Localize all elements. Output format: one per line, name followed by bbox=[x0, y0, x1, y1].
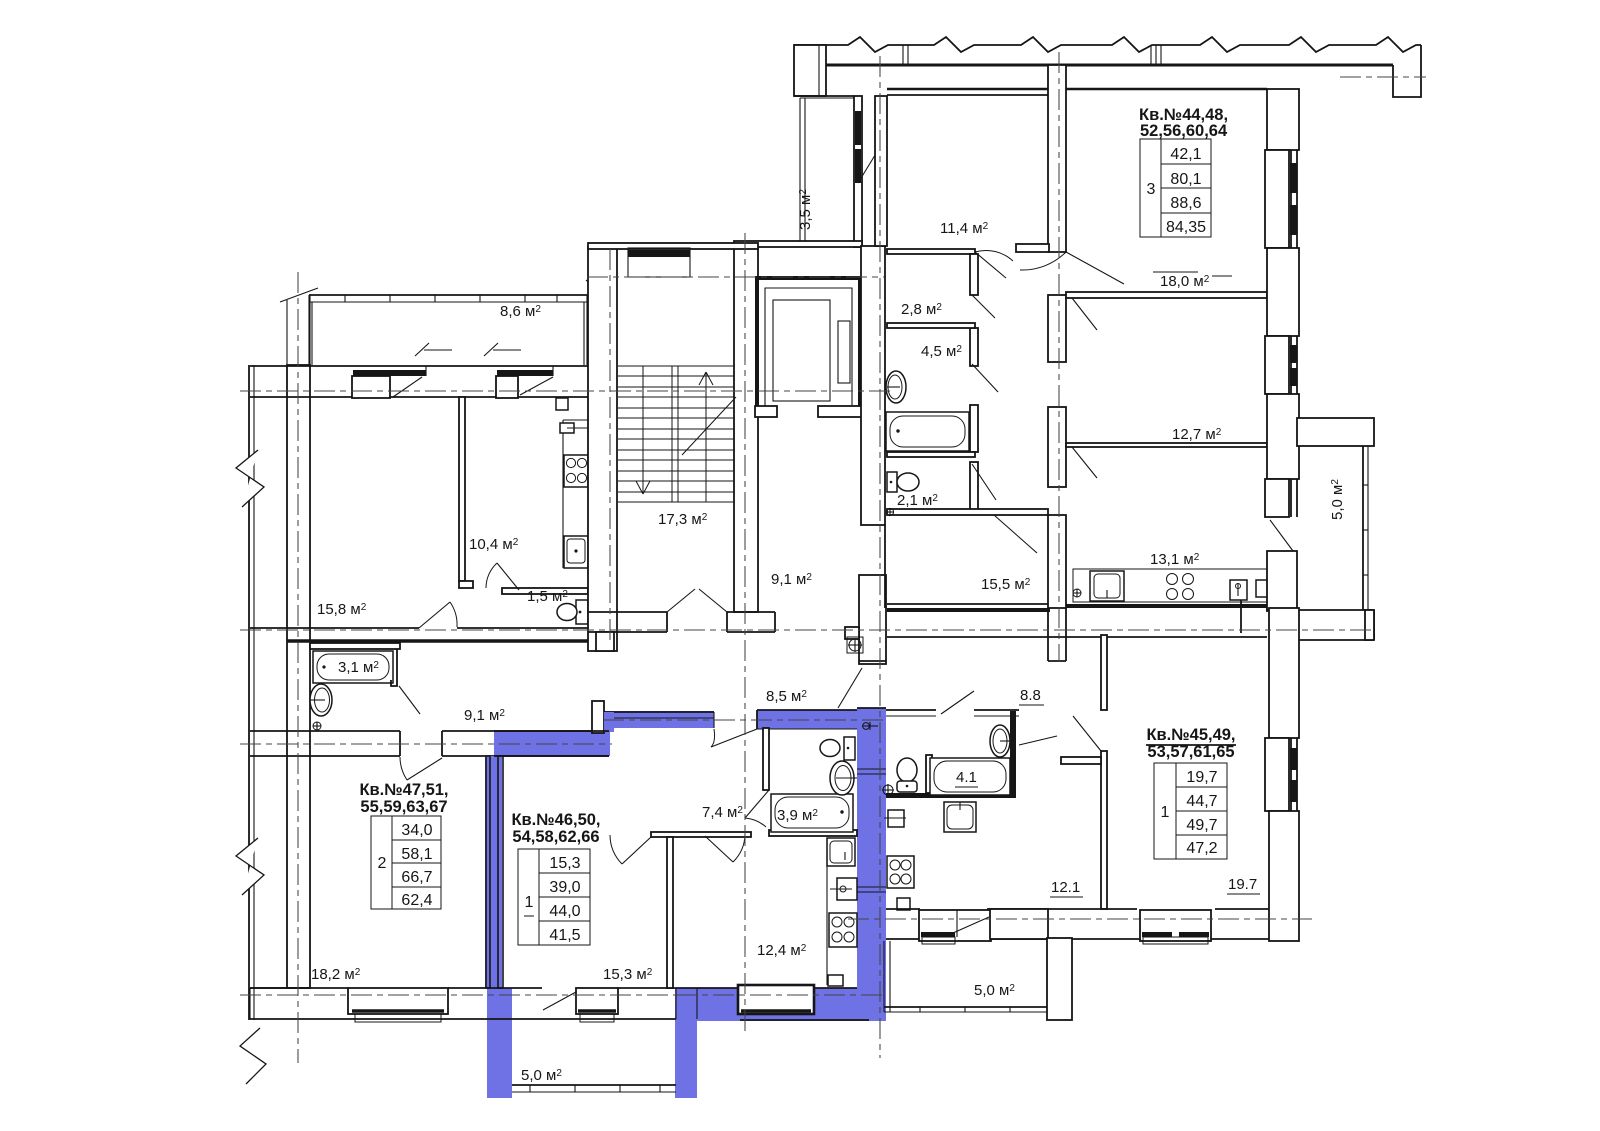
svg-text:12,4 м2: 12,4 м2 bbox=[757, 942, 807, 959]
svg-text:8.8: 8.8 bbox=[1020, 687, 1041, 704]
svg-text:3,5 м2: 3,5 м2 bbox=[797, 189, 814, 230]
svg-text:3,9 м2: 3,9 м2 bbox=[777, 807, 818, 824]
svg-text:1,5 м2: 1,5 м2 bbox=[527, 588, 568, 605]
svg-text:34,0: 34,0 bbox=[401, 822, 432, 839]
svg-text:5,0 м2: 5,0 м2 bbox=[974, 982, 1015, 999]
svg-text:12.1: 12.1 bbox=[1051, 879, 1080, 896]
svg-text:5,0 м2: 5,0 м2 bbox=[521, 1067, 562, 1084]
svg-text:10,4 м2: 10,4 м2 bbox=[469, 536, 519, 553]
svg-text:84,35: 84,35 bbox=[1166, 219, 1206, 236]
svg-text:19,7: 19,7 bbox=[1186, 769, 1217, 786]
svg-text:42,1: 42,1 bbox=[1170, 146, 1201, 163]
svg-text:2,1 м2: 2,1 м2 bbox=[897, 492, 938, 509]
svg-text:39,0: 39,0 bbox=[549, 879, 580, 896]
svg-text:47,2: 47,2 bbox=[1186, 840, 1217, 857]
svg-text:5,0 м2: 5,0 м2 bbox=[1329, 479, 1346, 520]
svg-text:19.7: 19.7 bbox=[1228, 876, 1257, 893]
svg-text:18,0 м2: 18,0 м2 bbox=[1160, 273, 1210, 290]
svg-text:54,58,62,66: 54,58,62,66 bbox=[512, 828, 599, 846]
svg-text:15,3: 15,3 bbox=[549, 855, 580, 872]
svg-text:49,7: 49,7 bbox=[1186, 817, 1217, 834]
svg-text:53,57,61,65: 53,57,61,65 bbox=[1147, 743, 1234, 761]
svg-text:44,0: 44,0 bbox=[549, 903, 580, 920]
svg-text:3,1 м2: 3,1 м2 bbox=[338, 659, 379, 676]
svg-text:44,7: 44,7 bbox=[1186, 793, 1217, 810]
svg-text:Кв.№47,51,: Кв.№47,51, bbox=[359, 781, 448, 799]
svg-text:41,5: 41,5 bbox=[549, 927, 580, 944]
svg-text:8,5 м2: 8,5 м2 bbox=[766, 688, 807, 705]
svg-text:1: 1 bbox=[1161, 804, 1170, 821]
svg-text:62,4: 62,4 bbox=[401, 892, 432, 909]
svg-text:9,1 м2: 9,1 м2 bbox=[771, 571, 812, 588]
svg-text:66,7: 66,7 bbox=[401, 869, 432, 886]
svg-text:3: 3 bbox=[1147, 181, 1156, 198]
svg-text:15,8 м2: 15,8 м2 bbox=[317, 601, 367, 618]
svg-text:88,6: 88,6 bbox=[1170, 195, 1201, 212]
svg-text:2,8 м2: 2,8 м2 bbox=[901, 301, 942, 318]
svg-text:80,1: 80,1 bbox=[1170, 171, 1201, 188]
svg-text:Кв.№45,49,: Кв.№45,49, bbox=[1146, 726, 1235, 744]
svg-text:52,56,60,64: 52,56,60,64 bbox=[1140, 122, 1228, 140]
svg-text:4.1: 4.1 bbox=[956, 769, 977, 786]
svg-text:55,59,63,67: 55,59,63,67 bbox=[360, 798, 447, 816]
svg-text:8,6 м2: 8,6 м2 bbox=[500, 303, 541, 320]
svg-text:58,1: 58,1 bbox=[401, 846, 432, 863]
svg-text:12,7 м2: 12,7 м2 bbox=[1172, 426, 1222, 443]
svg-text:4,5 м2: 4,5 м2 bbox=[921, 343, 962, 360]
svg-text:13,1 м2: 13,1 м2 bbox=[1150, 551, 1200, 568]
svg-text:7,4 м2: 7,4 м2 bbox=[702, 804, 743, 821]
svg-text:Кв.№46,50,: Кв.№46,50, bbox=[511, 811, 600, 829]
svg-text:15,5 м2: 15,5 м2 bbox=[981, 576, 1031, 593]
svg-text:17,3 м2: 17,3 м2 bbox=[658, 511, 708, 528]
svg-text:15,3 м2: 15,3 м2 bbox=[603, 966, 653, 983]
svg-text:18,2 м2: 18,2 м2 bbox=[311, 966, 361, 983]
svg-text:1: 1 bbox=[525, 894, 534, 911]
svg-text:9,1 м2: 9,1 м2 bbox=[464, 707, 505, 724]
svg-text:11,4 м2: 11,4 м2 bbox=[940, 220, 989, 237]
svg-text:2: 2 bbox=[378, 855, 387, 872]
